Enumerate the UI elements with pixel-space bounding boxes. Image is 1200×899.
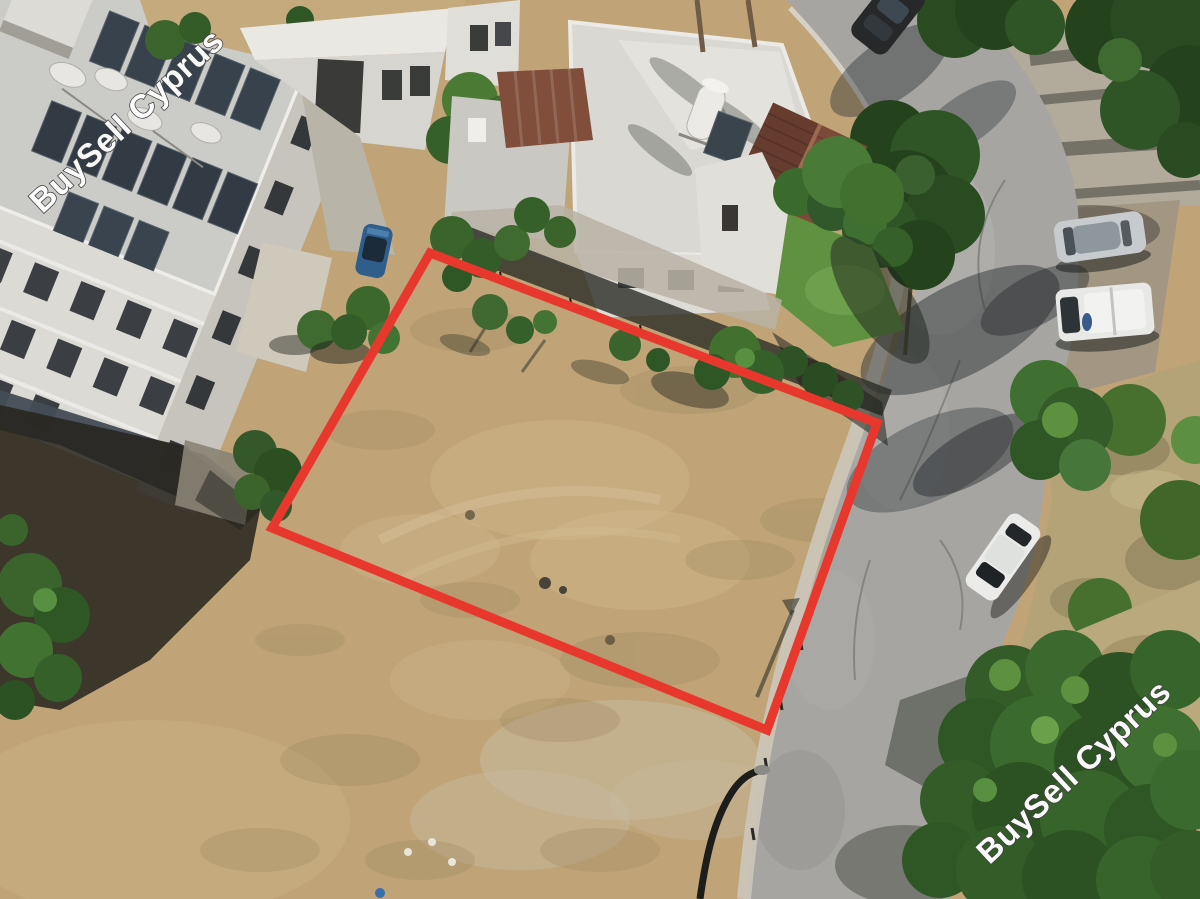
tiled-canopy (497, 68, 593, 148)
person-figure (1082, 313, 1092, 331)
photo-canvas: BuySell Cyprus BuySell Cyprus (0, 0, 1200, 899)
aerial-photo: BuySell Cyprus BuySell Cyprus (0, 0, 1200, 899)
parked-pickup-white (1051, 282, 1160, 356)
